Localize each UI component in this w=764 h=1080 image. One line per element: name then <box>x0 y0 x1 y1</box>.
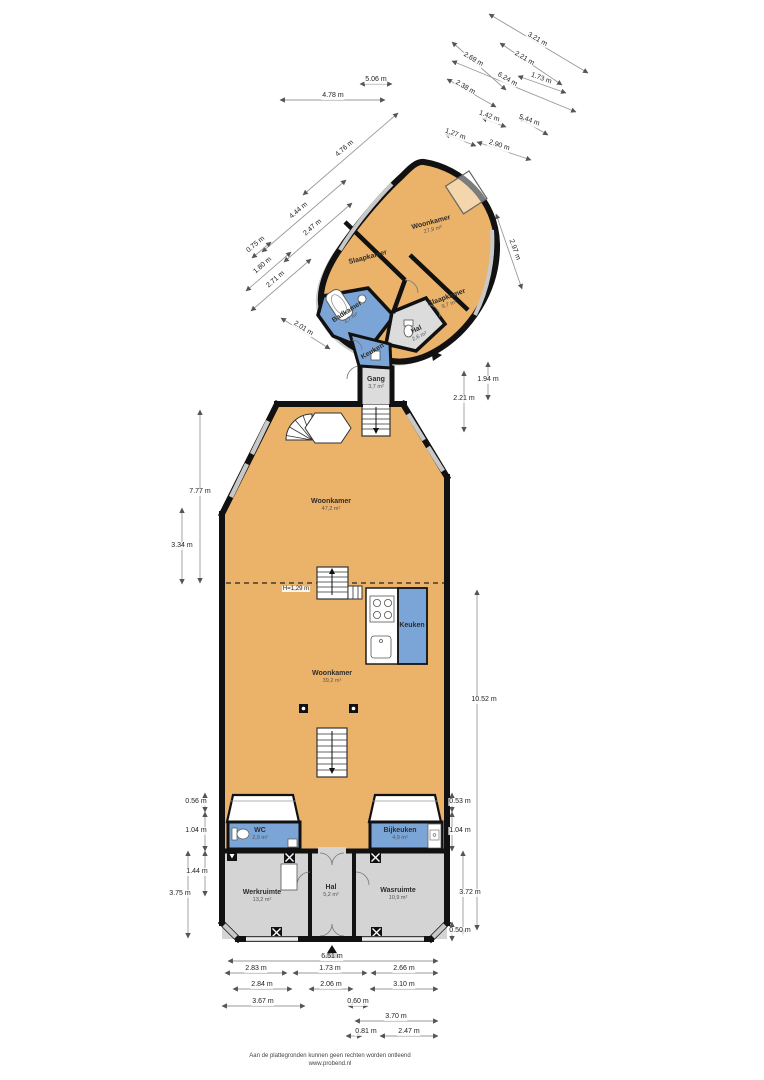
dimension-label: 3.75 m <box>168 890 191 898</box>
dimension-label: 2.83 m <box>244 965 267 973</box>
room-label-hal-main: Hal 5,2 m² <box>323 884 339 898</box>
dimension-label: 3.67 m <box>251 998 274 1006</box>
disclaimer-line2: www.probend.nl <box>249 1061 410 1069</box>
dimension-label: 1.44 m <box>185 868 208 876</box>
dimension-label: 2.21 m <box>452 395 475 403</box>
dimension-label: 4.78 m <box>321 92 344 100</box>
dimension-label: 10.52 m <box>470 696 497 704</box>
dimension-label: 2.66 m <box>392 965 415 973</box>
dimension-label: 1.94 m <box>476 376 499 384</box>
room-label-bijkeuken: Bijkeuken 4,9 m² <box>383 827 416 841</box>
dimension-label: 7.77 m <box>188 488 211 496</box>
dimension-label: 5.06 m <box>364 76 387 84</box>
floorplan-page: 3.21 m 2.21 m 2.69 m 6.24 m 1.73 m 2.38 … <box>0 0 764 1080</box>
dimension-label: 6.51 m <box>320 953 343 961</box>
dimension-label: 3.10 m <box>392 981 415 989</box>
dimension-label: 2.84 m <box>250 981 273 989</box>
dimension-label: 2.06 m <box>319 981 342 989</box>
dimension-label: 0.50 m <box>448 927 471 935</box>
room-label-woonkamer-mid: Woonkamer 39,2 m² <box>312 670 352 684</box>
height-note: H=1,29 m <box>282 586 310 592</box>
disclaimer-line1: Aan de plattegronden kunnen geen rechten… <box>249 1053 410 1061</box>
dimension-label: 2.47 m <box>397 1028 420 1036</box>
dimension-label: 0.81 m <box>354 1028 377 1036</box>
room-label-wc: WC 2,9 m² <box>252 827 268 841</box>
oval-building <box>318 162 497 368</box>
dimension-label: 3.70 m <box>384 1013 407 1021</box>
disclaimer: Aan de plattegronden kunnen geen rechten… <box>249 1053 410 1068</box>
room-label-wasruimte: Wasruimte 10,9 m² <box>380 887 416 901</box>
floorplan-drawing <box>0 0 764 1080</box>
dimension-label: 3.34 m <box>170 542 193 550</box>
room-label-gang: Gang 3,7 m² <box>367 376 385 390</box>
room-label-werkruimte: Werkruimte 13,2 m² <box>243 889 281 903</box>
dimension-label: 3.72 m <box>458 889 481 897</box>
dimension-label: 0.56 m <box>184 798 207 806</box>
room-label-woonkamer-top: Woonkamer 47,2 m² <box>311 498 351 512</box>
room-label-keuken-main: Keuken <box>399 622 424 630</box>
dimension-label: 1.73 m <box>318 965 341 973</box>
dimension-label: 0.60 m <box>346 998 369 1006</box>
dimension-label: 0.53 m <box>448 798 471 806</box>
dimension-label: 1.04 m <box>184 827 207 835</box>
dimension-label: 1.04 m <box>448 827 471 835</box>
